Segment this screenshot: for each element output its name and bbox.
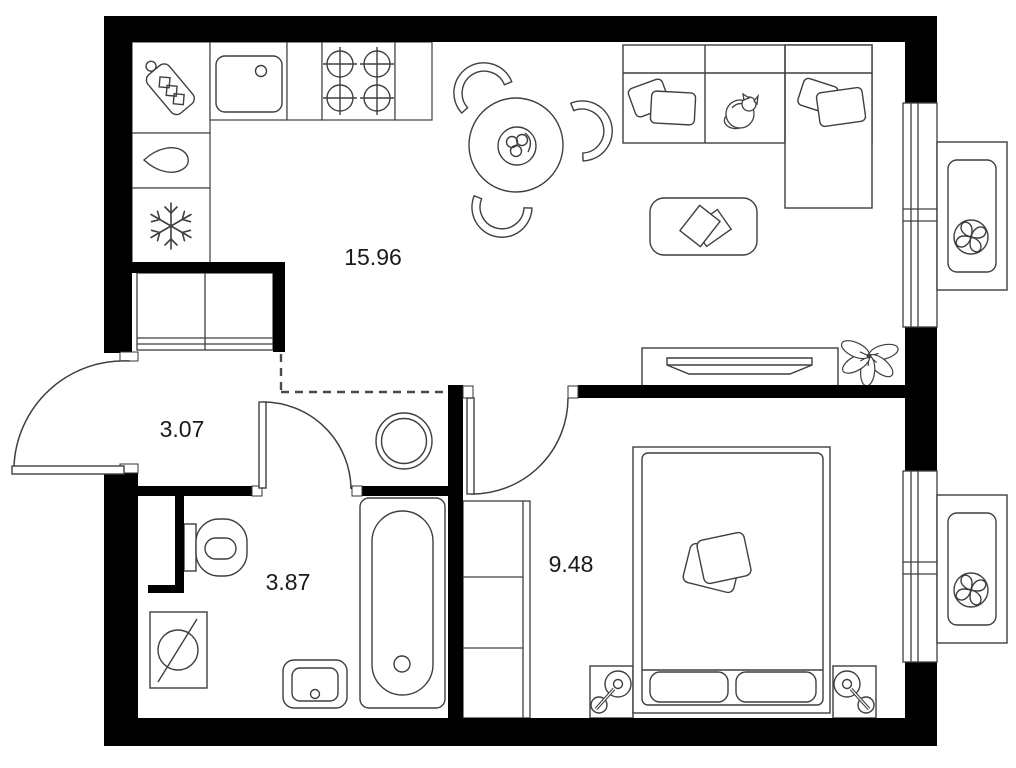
ac-unit-upper bbox=[937, 142, 1007, 290]
hallway-area-label: 3.07 bbox=[160, 416, 205, 442]
bed-pillow bbox=[650, 672, 728, 702]
wall-living-bedroom bbox=[578, 385, 905, 398]
wall-bath-bedroom bbox=[448, 385, 463, 718]
wall-bath-top-left bbox=[138, 486, 252, 496]
wall-right-top bbox=[905, 42, 937, 103]
bedroom-wardrobe bbox=[463, 501, 530, 718]
wall-right-bottom bbox=[905, 662, 937, 718]
bed-pillow bbox=[736, 672, 816, 702]
kitchen-sink-icon bbox=[216, 56, 282, 112]
wall-closet-top bbox=[132, 262, 285, 273]
window-lower bbox=[903, 471, 937, 662]
wall-right-mid bbox=[905, 327, 937, 471]
ac-unit-lower bbox=[937, 495, 1007, 643]
wall-top bbox=[104, 16, 937, 42]
bedroom-area-label: 9.48 bbox=[549, 551, 594, 577]
door-leaf bbox=[259, 402, 266, 488]
coffee-table-icon bbox=[650, 198, 757, 255]
toilet-icon bbox=[184, 519, 247, 576]
tv-console bbox=[642, 348, 838, 388]
bathtub-icon bbox=[360, 498, 445, 708]
door-leaf bbox=[12, 466, 124, 474]
wall-closet-right bbox=[273, 262, 285, 352]
double-bed-icon bbox=[633, 447, 830, 713]
ac-fan-icon bbox=[954, 220, 988, 254]
wall-bottom bbox=[104, 718, 937, 746]
ac-fan-icon bbox=[954, 573, 988, 607]
bathroom-area-label: 3.87 bbox=[266, 569, 311, 595]
laundry-basket-icon bbox=[376, 413, 432, 469]
wall-bath-top-right bbox=[352, 486, 448, 496]
floor-plan: 15.96 3.07 3.87 9.48 bbox=[0, 0, 1016, 768]
washing-machine-icon bbox=[150, 612, 207, 688]
door-leaf bbox=[467, 398, 474, 494]
wall-left-upper bbox=[104, 42, 132, 353]
living-kitchen-area-label: 15.96 bbox=[344, 244, 402, 270]
floor-plan-drawing: 15.96 3.07 3.87 9.48 bbox=[0, 0, 1016, 768]
hall-wardrobe bbox=[137, 273, 273, 350]
tv-icon bbox=[667, 358, 812, 374]
wall-shaft-bottom bbox=[148, 585, 184, 593]
wall-left-lower bbox=[104, 473, 138, 746]
wall-shaft-right bbox=[175, 496, 184, 593]
duvet-pillow bbox=[696, 531, 752, 584]
dining-table-icon bbox=[469, 98, 563, 192]
washbasin-icon bbox=[283, 660, 347, 708]
window-upper bbox=[903, 103, 937, 327]
